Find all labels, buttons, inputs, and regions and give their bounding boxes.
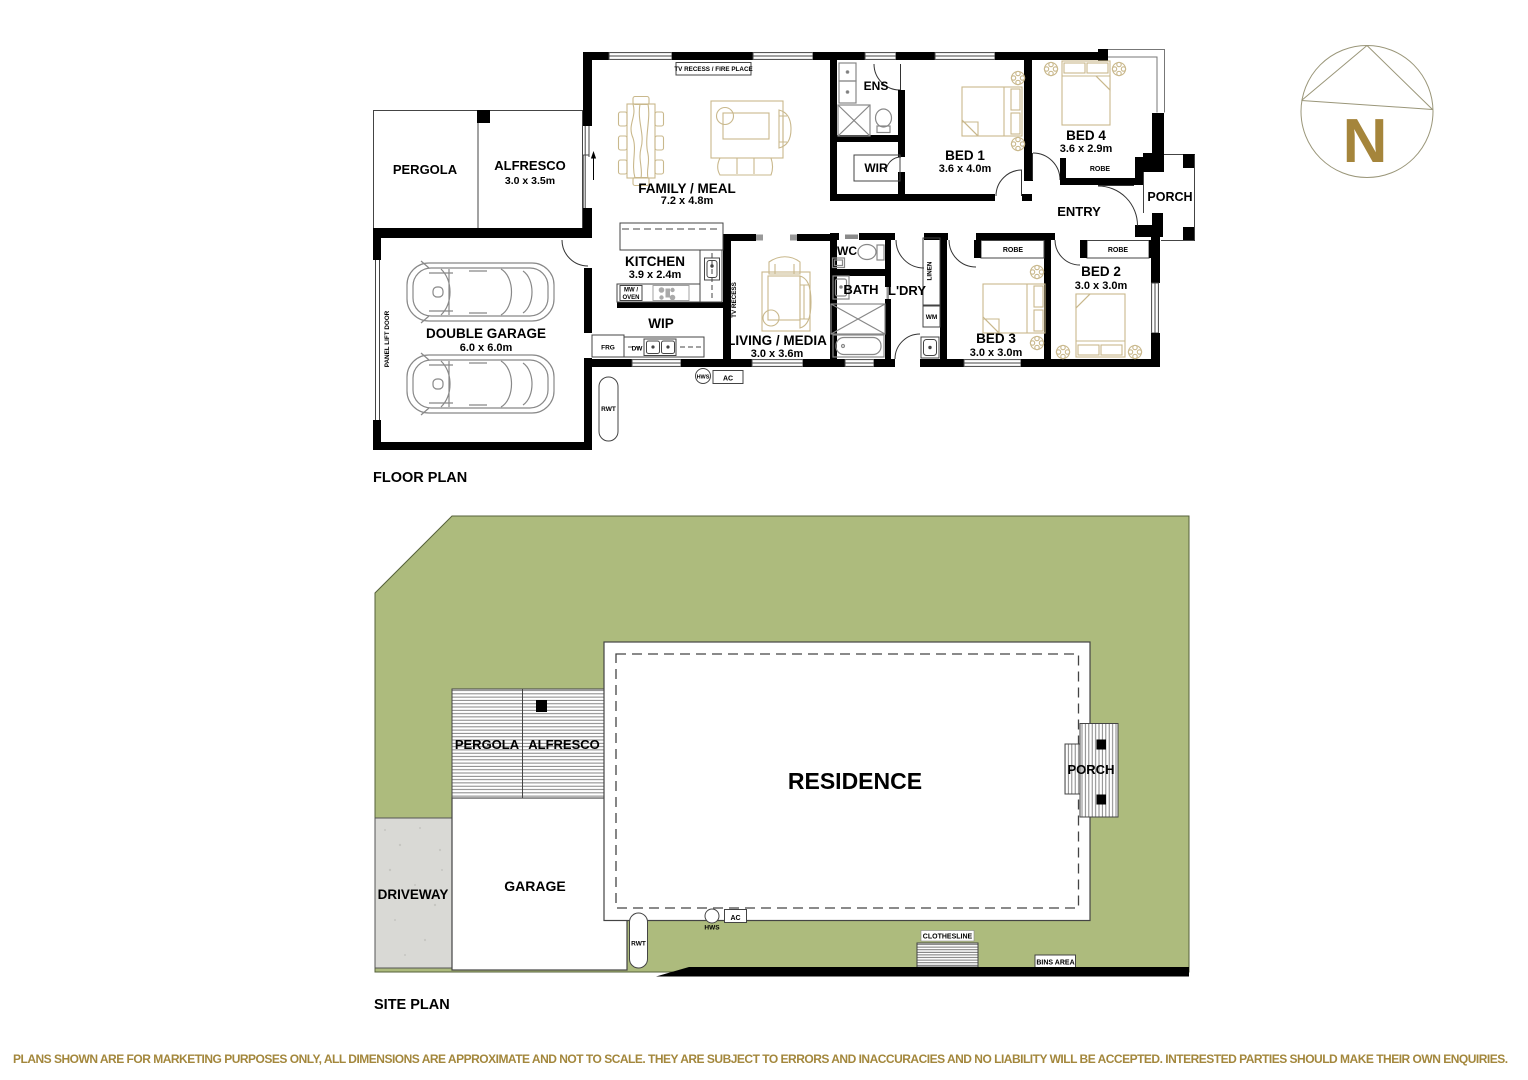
- svg-text:FRG: FRG: [601, 345, 615, 352]
- svg-text:3.0 x 3.5m: 3.0 x 3.5m: [505, 175, 555, 187]
- svg-text:3.0 x 3.6m: 3.0 x 3.6m: [751, 348, 804, 360]
- svg-text:BED 4: BED 4: [1066, 128, 1106, 143]
- svg-text:PORCH: PORCH: [1147, 190, 1192, 204]
- svg-text:BINS AREA: BINS AREA: [1036, 960, 1074, 967]
- svg-text:AC: AC: [723, 376, 733, 383]
- svg-text:BATH: BATH: [843, 282, 878, 297]
- svg-text:BED 3: BED 3: [976, 331, 1016, 346]
- svg-text:LIVING / MEDIA: LIVING / MEDIA: [727, 333, 827, 348]
- svg-text:ROBE: ROBE: [1108, 247, 1129, 254]
- svg-text:PORCH: PORCH: [1068, 762, 1115, 777]
- svg-text:FAMILY / MEAL: FAMILY / MEAL: [638, 181, 736, 196]
- svg-text:PERGOLA: PERGOLA: [455, 737, 520, 752]
- svg-text:DOUBLE GARAGE: DOUBLE GARAGE: [426, 326, 546, 341]
- svg-text:WIP: WIP: [648, 316, 674, 331]
- svg-text:3.0 x 3.0m: 3.0 x 3.0m: [1075, 280, 1128, 292]
- svg-text:GARAGE: GARAGE: [504, 878, 565, 894]
- svg-text:TV RECESS / FIRE PLACE: TV RECESS / FIRE PLACE: [674, 66, 752, 73]
- svg-text:3.0 x 3.0m: 3.0 x 3.0m: [970, 347, 1023, 359]
- svg-text:CLOTHESLINE: CLOTHESLINE: [923, 934, 973, 941]
- svg-text:ENTRY: ENTRY: [1057, 204, 1101, 219]
- svg-text:N: N: [1343, 107, 1388, 176]
- svg-text:DW: DW: [632, 346, 644, 353]
- svg-text:MW /: MW /: [624, 288, 638, 294]
- svg-text:RESIDENCE: RESIDENCE: [788, 768, 922, 794]
- svg-text:ALFRESCO: ALFRESCO: [494, 158, 566, 173]
- svg-text:DRIVEWAY: DRIVEWAY: [378, 887, 449, 902]
- svg-text:ALFRESCO: ALFRESCO: [528, 737, 600, 752]
- svg-text:ROBE: ROBE: [1003, 247, 1024, 254]
- svg-text:ROBE: ROBE: [1090, 166, 1111, 173]
- svg-text:OVEN: OVEN: [622, 295, 639, 301]
- svg-text:WIR: WIR: [864, 161, 888, 175]
- svg-text:3.6 x 2.9m: 3.6 x 2.9m: [1060, 143, 1113, 155]
- svg-text:RWT: RWT: [601, 406, 616, 413]
- svg-text:PERGOLA: PERGOLA: [393, 162, 458, 177]
- svg-text:6.0 x 6.0m: 6.0 x 6.0m: [460, 342, 513, 354]
- svg-text:BED 1: BED 1: [945, 148, 985, 163]
- svg-text:BED 2: BED 2: [1081, 264, 1121, 279]
- svg-text:HWS: HWS: [704, 925, 720, 932]
- svg-text:FLOOR PLAN: FLOOR PLAN: [373, 470, 467, 486]
- svg-text:3.9 x 2.4m: 3.9 x 2.4m: [629, 269, 682, 281]
- svg-text:TV RECESS: TV RECESS: [731, 282, 738, 318]
- svg-text:3.6 x 4.0m: 3.6 x 4.0m: [939, 163, 992, 175]
- svg-text:SITE PLAN: SITE PLAN: [374, 997, 450, 1013]
- svg-text:ENS: ENS: [864, 79, 889, 93]
- svg-text:7.2 x 4.8m: 7.2 x 4.8m: [661, 195, 714, 207]
- svg-text:LINEN: LINEN: [927, 261, 934, 280]
- svg-text:HWS: HWS: [697, 375, 710, 381]
- svg-text:PLANS SHOWN ARE FOR MARKETING: PLANS SHOWN ARE FOR MARKETING PURPOSES O…: [13, 1052, 1508, 1066]
- svg-text:AC: AC: [730, 915, 740, 922]
- svg-text:RWT: RWT: [631, 941, 646, 948]
- svg-text:KITCHEN: KITCHEN: [625, 254, 685, 269]
- svg-text:PANEL LIFT DOOR: PANEL LIFT DOOR: [384, 310, 391, 367]
- svg-text:WC: WC: [837, 244, 857, 258]
- svg-text:L'DRY: L'DRY: [888, 283, 926, 298]
- svg-text:WM: WM: [926, 314, 938, 321]
